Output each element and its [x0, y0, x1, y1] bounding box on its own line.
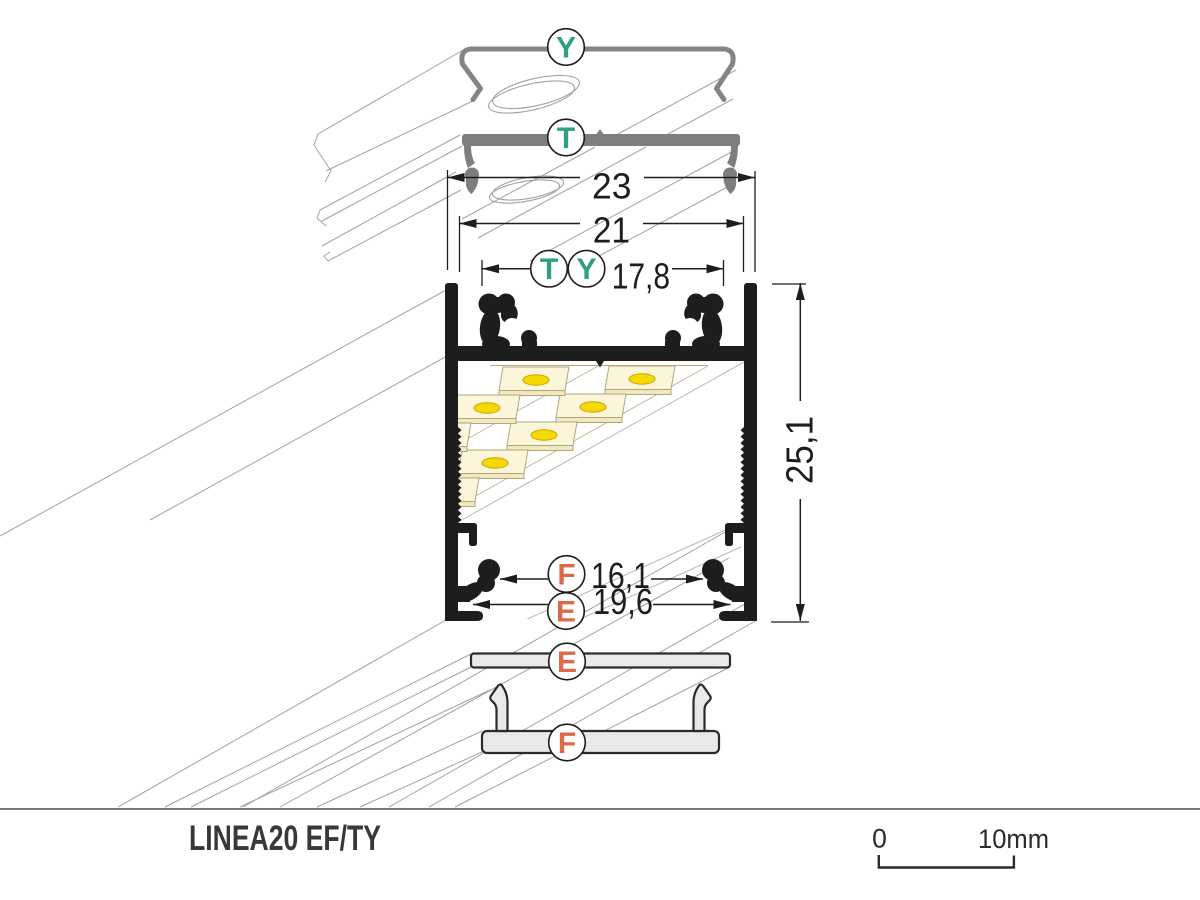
svg-text:25,1: 25,1 [780, 416, 822, 484]
svg-text:21: 21 [593, 209, 630, 250]
svg-text:T: T [540, 253, 558, 286]
svg-text:Y: Y [556, 32, 576, 65]
svg-text:10mm: 10mm [978, 824, 1049, 854]
svg-text:E: E [557, 646, 577, 679]
svg-text:F: F [558, 727, 576, 760]
svg-text:23: 23 [592, 165, 631, 206]
svg-text:T: T [557, 122, 575, 155]
svg-text:19,6: 19,6 [593, 581, 653, 622]
svg-text:F: F [557, 559, 575, 592]
svg-text:17,8: 17,8 [612, 255, 670, 296]
svg-text:Y: Y [576, 253, 596, 286]
svg-text:LINEA20 EF/TY: LINEA20 EF/TY [189, 818, 381, 858]
svg-text:0: 0 [872, 824, 887, 854]
svg-text:E: E [556, 596, 576, 629]
